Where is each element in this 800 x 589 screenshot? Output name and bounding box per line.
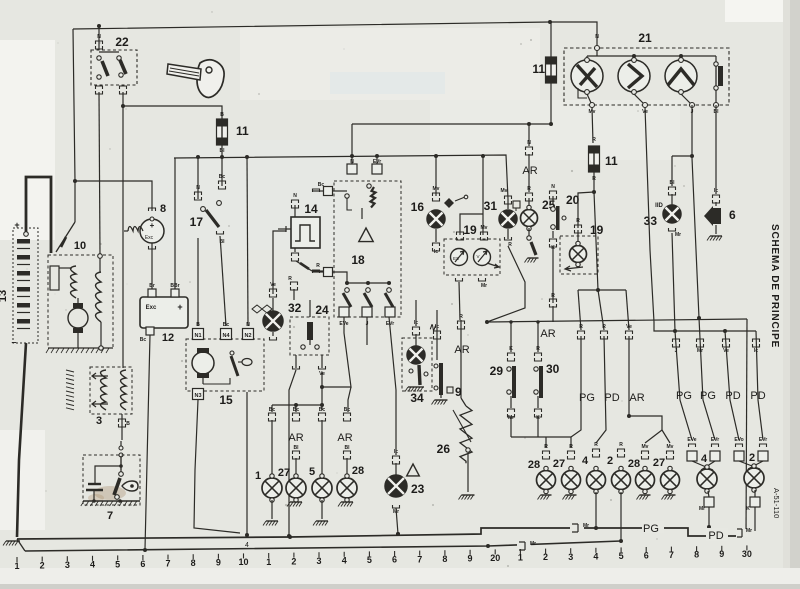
svg-text:29: 29 bbox=[490, 364, 504, 378]
svg-text:Ic: Ic bbox=[714, 188, 718, 194]
svg-text:3: 3 bbox=[96, 415, 102, 427]
svg-text:5: 5 bbox=[619, 551, 624, 561]
svg-text:N1: N1 bbox=[194, 333, 201, 339]
svg-text:–: – bbox=[11, 337, 16, 347]
svg-text:N4: N4 bbox=[222, 333, 230, 339]
svg-text:+: + bbox=[177, 302, 182, 312]
svg-text:IID: IID bbox=[655, 203, 663, 209]
svg-text:21: 21 bbox=[638, 31, 652, 45]
svg-text:Bc: Bc bbox=[344, 407, 351, 413]
svg-text:PD: PD bbox=[604, 392, 619, 404]
svg-text:R: R bbox=[316, 263, 320, 269]
svg-text:4: 4 bbox=[582, 455, 589, 467]
svg-text:K: K bbox=[746, 506, 750, 512]
svg-text:N: N bbox=[551, 184, 555, 190]
svg-text:11: 11 bbox=[605, 154, 618, 168]
svg-text:+: + bbox=[150, 221, 155, 230]
svg-text:Bl: Bl bbox=[294, 445, 300, 451]
svg-text:Ic: Ic bbox=[434, 249, 438, 255]
svg-text:27: 27 bbox=[278, 467, 290, 479]
svg-text:R: R bbox=[579, 324, 583, 330]
svg-text:Ic: Ic bbox=[754, 348, 758, 354]
svg-text:Mv: Mv bbox=[667, 444, 674, 450]
svg-text:Bl: Bl bbox=[670, 180, 676, 186]
svg-text:5: 5 bbox=[115, 559, 120, 569]
svg-text:AR: AR bbox=[522, 165, 537, 177]
svg-text:30: 30 bbox=[742, 549, 752, 559]
svg-text:R: R bbox=[459, 314, 463, 320]
svg-text:Ic: Ic bbox=[435, 324, 439, 330]
svg-text:N3: N3 bbox=[194, 393, 201, 399]
svg-text:N: N bbox=[595, 34, 599, 40]
svg-text:B: B bbox=[196, 322, 200, 328]
svg-text:Bc: Bc bbox=[140, 337, 147, 343]
svg-text:28: 28 bbox=[352, 465, 364, 477]
svg-text:Ic: Ic bbox=[394, 449, 398, 455]
svg-text:30: 30 bbox=[546, 362, 560, 376]
svg-text:N: N bbox=[196, 185, 200, 191]
svg-text:19: 19 bbox=[463, 223, 477, 237]
svg-text:1: 1 bbox=[14, 561, 19, 571]
svg-text:A-51-110: A-51-110 bbox=[772, 488, 781, 518]
svg-text:Ve: Ve bbox=[270, 282, 276, 288]
svg-text:33: 33 bbox=[644, 214, 658, 228]
svg-text:PD: PD bbox=[725, 390, 740, 402]
svg-text:1: 1 bbox=[518, 553, 523, 563]
svg-text:BBr: BBr bbox=[170, 283, 179, 289]
svg-text:N: N bbox=[527, 140, 531, 146]
svg-text:R: R bbox=[527, 186, 531, 192]
svg-text:6: 6 bbox=[140, 559, 145, 569]
svg-text:Mr: Mr bbox=[481, 283, 487, 289]
svg-text:2: 2 bbox=[40, 561, 45, 571]
svg-text:4: 4 bbox=[701, 453, 708, 465]
svg-text:N: N bbox=[350, 159, 354, 165]
svg-text:20: 20 bbox=[490, 553, 500, 563]
svg-text:Bc: Bc bbox=[293, 407, 300, 413]
svg-text:11: 11 bbox=[532, 62, 545, 76]
svg-text:Mr: Mr bbox=[530, 541, 536, 547]
svg-text:AR: AR bbox=[454, 344, 469, 356]
svg-text:Mv: Mv bbox=[501, 188, 508, 194]
svg-text:N: N bbox=[97, 34, 101, 40]
svg-text:5: 5 bbox=[367, 555, 372, 565]
svg-text:15: 15 bbox=[219, 393, 233, 407]
svg-text:2: 2 bbox=[749, 452, 755, 464]
svg-text:8: 8 bbox=[694, 550, 699, 560]
svg-text:7: 7 bbox=[417, 554, 422, 564]
svg-text:11: 11 bbox=[236, 124, 249, 138]
svg-text:Mv: Mv bbox=[642, 444, 649, 450]
svg-text:Ve: Ve bbox=[723, 348, 729, 354]
svg-text:EVr: EVr bbox=[711, 437, 719, 443]
svg-text:Exc: Exc bbox=[145, 235, 154, 241]
svg-text:1: 1 bbox=[266, 557, 271, 567]
svg-text:16: 16 bbox=[411, 200, 425, 214]
svg-text:2: 2 bbox=[543, 552, 548, 562]
svg-text:PG: PG bbox=[643, 523, 659, 535]
svg-text:31: 31 bbox=[484, 199, 498, 213]
svg-text:R: R bbox=[551, 293, 555, 299]
svg-text:Mr: Mr bbox=[699, 506, 705, 512]
svg-text:14: 14 bbox=[304, 202, 318, 216]
svg-text:13: 13 bbox=[0, 290, 9, 302]
svg-text:EVo: EVo bbox=[734, 437, 743, 443]
svg-text:R: R bbox=[602, 324, 606, 330]
svg-text:Bc: Bc bbox=[269, 407, 276, 413]
svg-text:Bl: Bl bbox=[345, 445, 351, 451]
svg-text:EVe: EVe bbox=[687, 437, 696, 443]
svg-text:32: 32 bbox=[288, 301, 302, 315]
svg-text:8: 8 bbox=[442, 554, 447, 564]
svg-text:AR: AR bbox=[629, 392, 644, 404]
svg-text:2: 2 bbox=[291, 556, 296, 566]
svg-text:9: 9 bbox=[455, 385, 462, 399]
svg-text:PG: PG bbox=[676, 390, 692, 402]
svg-text:Bc: Bc bbox=[219, 174, 226, 180]
svg-text:Mr: Mr bbox=[697, 348, 703, 354]
svg-text:23: 23 bbox=[411, 482, 425, 496]
svg-text:Mr: Mr bbox=[583, 523, 589, 529]
svg-text:Exc: Exc bbox=[146, 305, 157, 311]
svg-text:10: 10 bbox=[74, 240, 86, 252]
svg-text:7: 7 bbox=[107, 510, 113, 522]
svg-text:SCHEMA DE PRINCIPE: SCHEMA DE PRINCIPE bbox=[769, 224, 780, 348]
svg-text:B: B bbox=[220, 112, 224, 118]
svg-text:R: R bbox=[592, 137, 596, 143]
svg-text:18: 18 bbox=[351, 253, 365, 267]
svg-text:AR: AR bbox=[540, 328, 555, 340]
svg-text:8: 8 bbox=[160, 203, 166, 215]
svg-text:6: 6 bbox=[729, 208, 736, 222]
svg-text:6: 6 bbox=[644, 551, 649, 561]
svg-text:28: 28 bbox=[528, 459, 540, 471]
svg-text:N: N bbox=[293, 193, 297, 199]
svg-text:7: 7 bbox=[166, 558, 171, 568]
svg-text:V: V bbox=[476, 254, 479, 259]
svg-text:R: R bbox=[569, 444, 573, 450]
svg-text:R: R bbox=[619, 442, 623, 448]
svg-text:7: 7 bbox=[669, 550, 674, 560]
svg-text:10: 10 bbox=[239, 557, 249, 567]
svg-text:9: 9 bbox=[719, 549, 724, 559]
svg-text:R: R bbox=[594, 442, 598, 448]
svg-text:Mv: Mv bbox=[433, 186, 440, 192]
svg-text:3: 3 bbox=[317, 556, 322, 566]
svg-text:4: 4 bbox=[342, 556, 347, 566]
svg-text:2: 2 bbox=[607, 455, 613, 467]
svg-text:Mv: Mv bbox=[481, 225, 488, 231]
svg-text:PG: PG bbox=[700, 390, 716, 402]
svg-text:5: 5 bbox=[309, 466, 315, 478]
svg-text:PD: PD bbox=[708, 530, 723, 542]
svg-text:4: 4 bbox=[90, 560, 95, 570]
svg-text:1: 1 bbox=[255, 470, 261, 482]
svg-text:27: 27 bbox=[653, 457, 665, 469]
svg-text:8: 8 bbox=[191, 558, 196, 568]
svg-text:17: 17 bbox=[190, 215, 204, 229]
svg-text:19: 19 bbox=[590, 223, 604, 237]
svg-text:AR: AR bbox=[337, 432, 352, 444]
svg-text:K: K bbox=[509, 346, 513, 352]
svg-text:24: 24 bbox=[315, 303, 329, 317]
svg-text:R: R bbox=[536, 346, 540, 352]
svg-text:J: J bbox=[675, 348, 678, 354]
svg-text:22: 22 bbox=[115, 35, 129, 49]
svg-text:R: R bbox=[576, 218, 580, 224]
svg-text:N: N bbox=[246, 322, 250, 328]
svg-text:AR: AR bbox=[288, 432, 303, 444]
svg-text:27: 27 bbox=[553, 458, 565, 470]
svg-text:R: R bbox=[288, 276, 292, 282]
svg-text:R: R bbox=[544, 444, 548, 450]
svg-text:+: + bbox=[14, 220, 19, 230]
svg-text:6: 6 bbox=[392, 555, 397, 565]
svg-text:Ve: Ve bbox=[626, 324, 632, 330]
svg-text:Mr: Mr bbox=[746, 528, 752, 534]
svg-text:Bc: Bc bbox=[223, 322, 230, 328]
svg-text:Bc: Bc bbox=[319, 407, 326, 413]
svg-text:3: 3 bbox=[65, 560, 70, 570]
svg-text:B: B bbox=[126, 421, 130, 427]
svg-text:9: 9 bbox=[216, 558, 221, 568]
svg-text:26: 26 bbox=[437, 442, 451, 456]
svg-text:28: 28 bbox=[628, 458, 640, 470]
svg-text:N2: N2 bbox=[244, 333, 251, 339]
svg-text:Br: Br bbox=[149, 283, 155, 289]
svg-text:4: 4 bbox=[593, 551, 598, 561]
svg-text:12: 12 bbox=[162, 332, 174, 344]
svg-text:Ic: Ic bbox=[414, 320, 418, 326]
svg-text:Mr: Mr bbox=[675, 232, 681, 238]
svg-text:34: 34 bbox=[410, 391, 424, 405]
svg-text:3: 3 bbox=[568, 552, 573, 562]
svg-text:EVr: EVr bbox=[759, 437, 767, 443]
svg-text:PD: PD bbox=[750, 390, 765, 402]
svg-text:EVr: EVr bbox=[373, 159, 381, 165]
svg-text:9: 9 bbox=[468, 553, 473, 563]
